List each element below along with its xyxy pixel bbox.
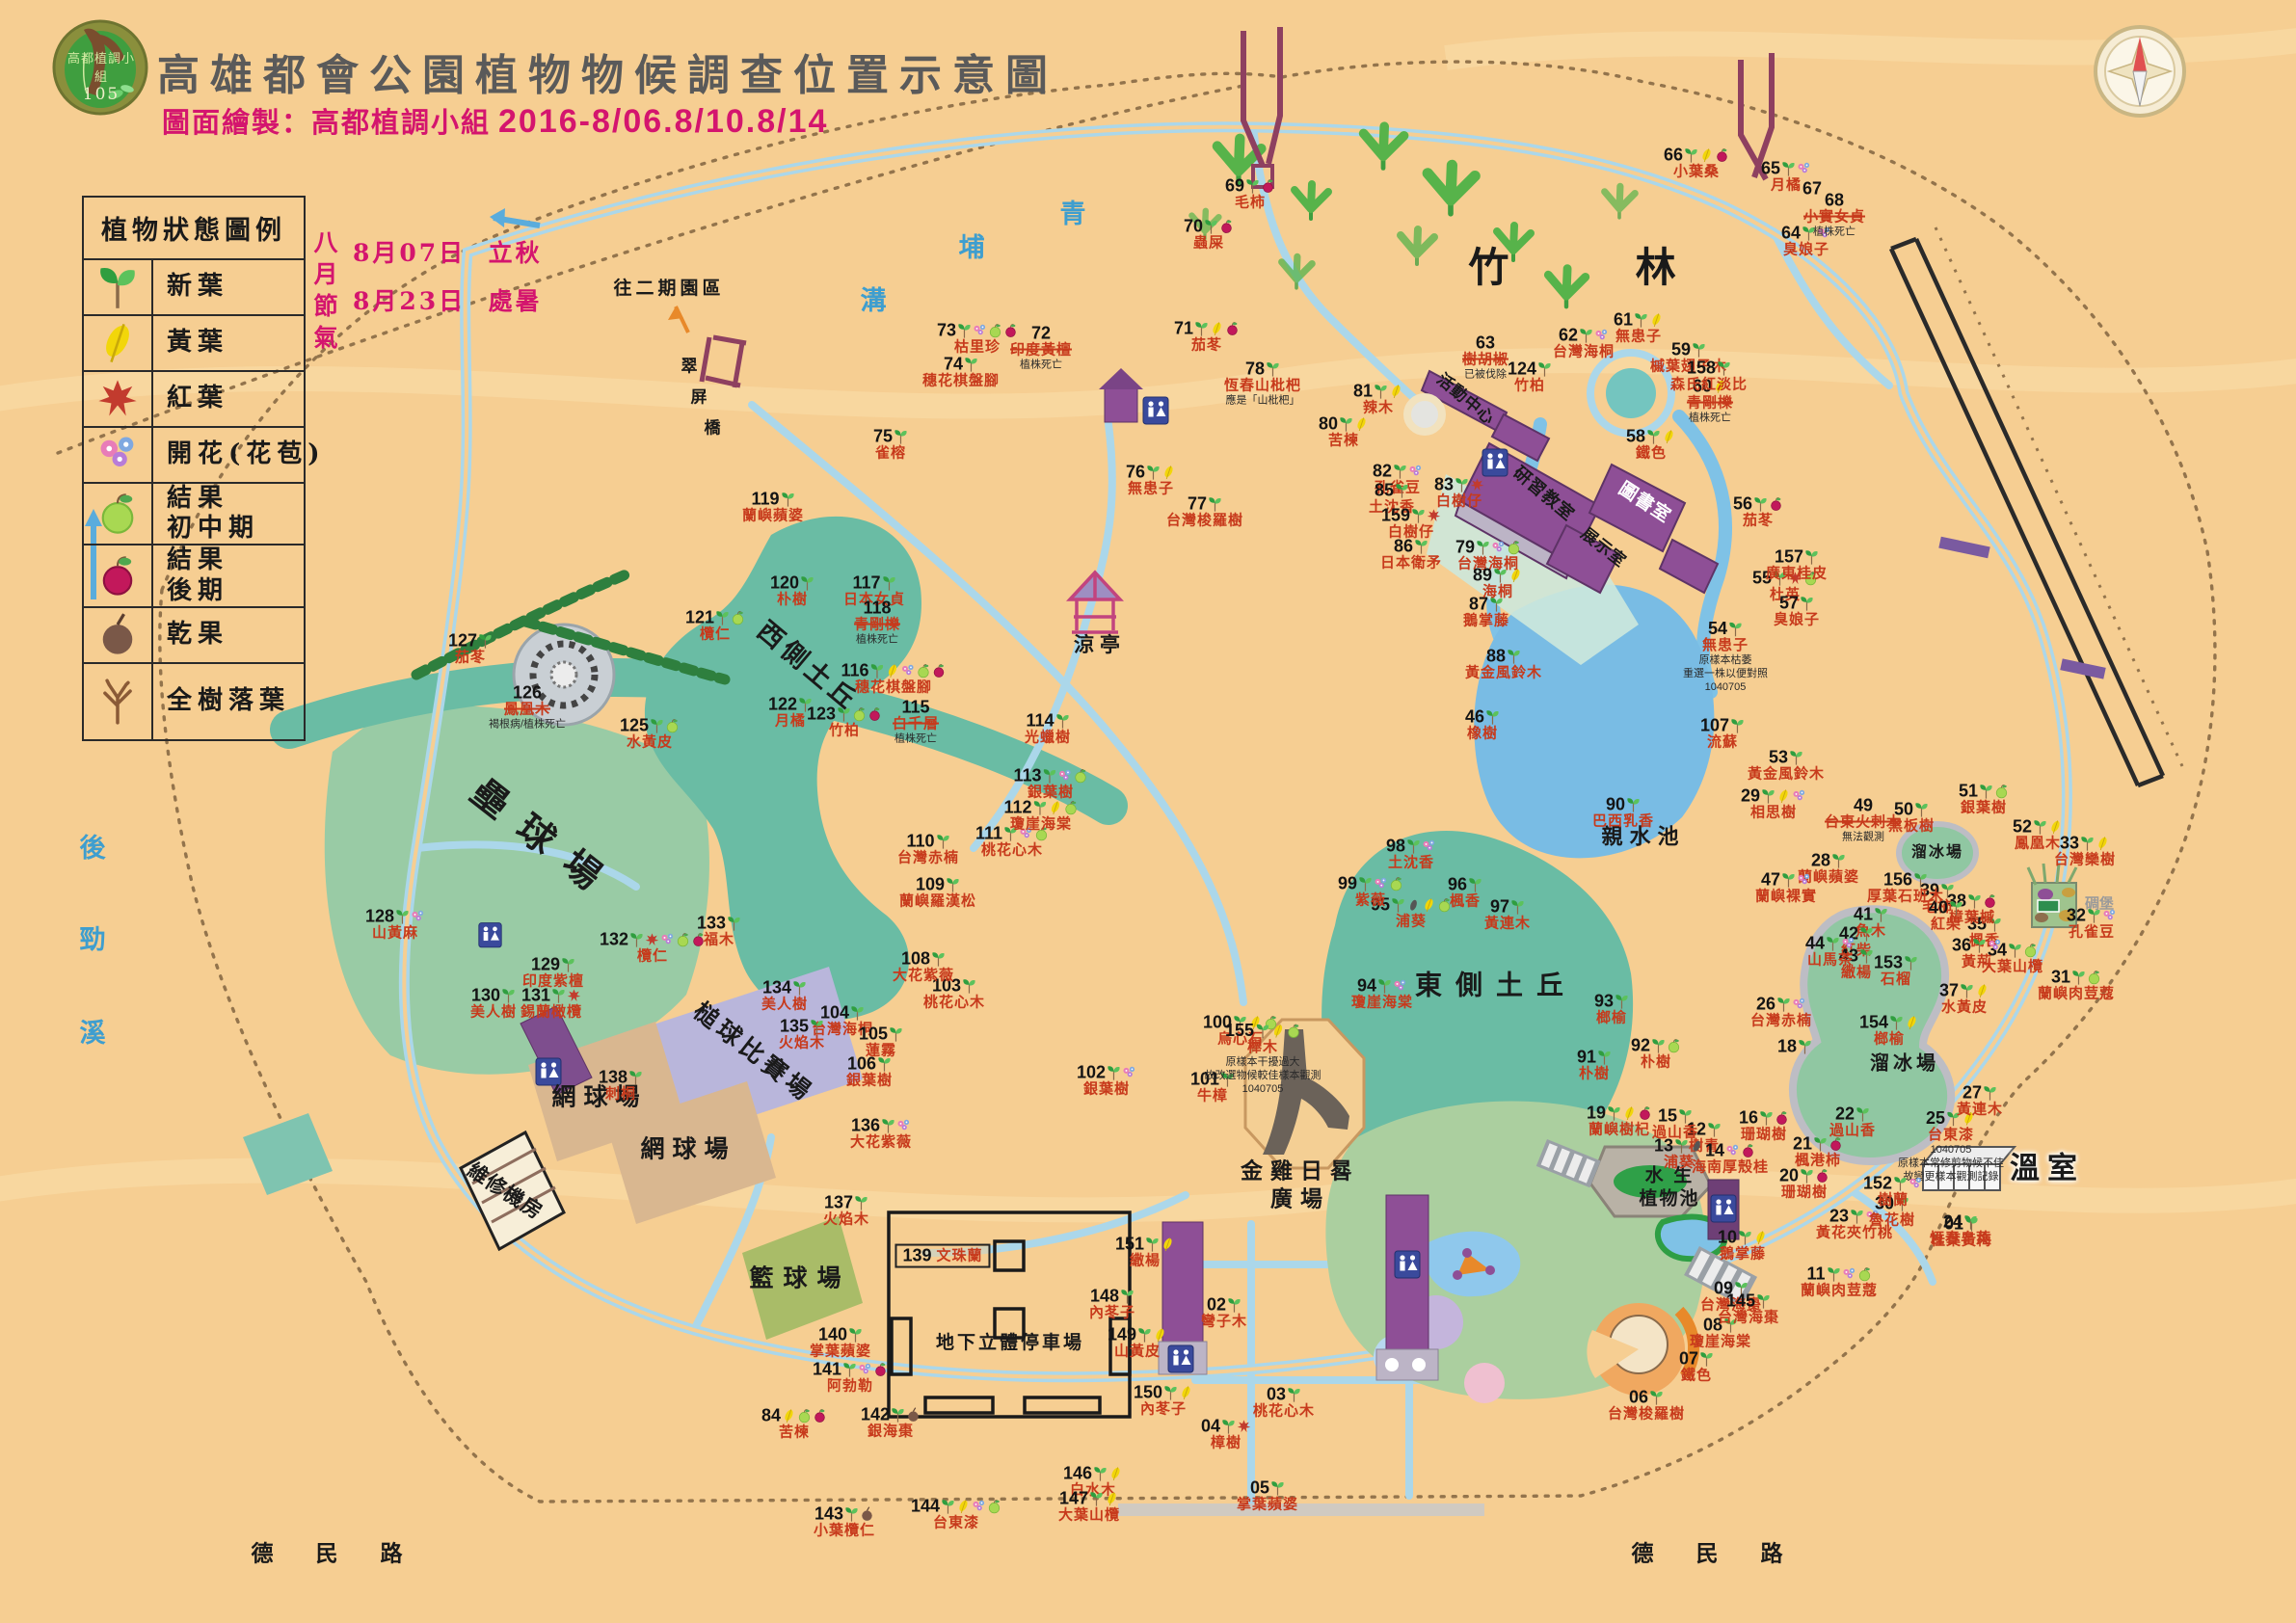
plant-name: 竹柏 (1514, 379, 1545, 394)
toilet-sign-activity-center (1482, 449, 1508, 476)
y-status-icon (1649, 312, 1664, 329)
activity-center-forecourt (1407, 397, 1442, 432)
plant-marker-119: 119蘭嶼蘋婆 (742, 491, 804, 524)
g-status-icon (1972, 938, 1987, 954)
plant-name: 彎子木 (1201, 1315, 1247, 1330)
plant-name: 台灣海桐 (1553, 345, 1615, 360)
y-status-icon (886, 663, 900, 679)
g-status-icon (781, 492, 795, 508)
plant-name: 山馬茶 (1807, 953, 1854, 969)
legend-label: 黃葉 (153, 328, 304, 358)
g-status-icon (1756, 1293, 1771, 1310)
g-status-icon (1455, 477, 1469, 493)
g-status-icon (964, 357, 978, 373)
g-status-icon (1055, 713, 1070, 730)
f-status-icon (858, 1362, 872, 1378)
plant-marker-69: 69毛柿 (1225, 177, 1275, 211)
plant-name: 銀葉樹 (1083, 1082, 1130, 1098)
plant-name: 小葉桑 (1673, 165, 1720, 180)
f-status-icon (1988, 938, 2002, 954)
marker-number: 18 (1777, 1038, 1797, 1056)
area-label: 竹 林 (1468, 243, 1708, 294)
plant-marker-72: 72印度黃檀植株死亡 (1010, 325, 1072, 372)
g-status-icon (894, 429, 908, 445)
plant-name: 台東漆 (1928, 1128, 1974, 1143)
g-status-icon (931, 951, 946, 968)
g-status-icon (629, 932, 644, 948)
g-status-icon (1979, 784, 1993, 800)
y-status-icon (1179, 1385, 1193, 1401)
west-blue-arrow-icon (490, 208, 540, 227)
plant-marker-31: 31蘭嶼肉荳蔻 (2038, 969, 2115, 1002)
y-status-icon (1270, 1023, 1285, 1039)
rf-status-icon (932, 663, 947, 679)
g-status-icon (1983, 1085, 1997, 1102)
plant-marker-52: 52鳳凰木 (2013, 818, 2063, 852)
f-status-icon (973, 323, 987, 339)
g-status-icon (941, 1499, 955, 1515)
plant-marker-142: 142銀海棗 (861, 1406, 921, 1440)
g-status-icon (1468, 877, 1482, 893)
plant-name: 石榴 (1881, 972, 1911, 988)
plant-marker-10: 10鵝掌藤 (1718, 1229, 1768, 1263)
plant-name: 水黃皮 (1941, 1000, 1988, 1016)
plant-marker-50: 50黑板樹 (1888, 801, 1935, 835)
plant-name: 阿勃勒 (827, 1379, 873, 1395)
g-status-icon (1859, 926, 1874, 943)
plant-name: 無患子 (1702, 638, 1749, 653)
y-legend-icon-cell (84, 316, 153, 370)
plant-name: 福木 (704, 933, 734, 948)
plant-marker-120: 120朴樹 (770, 574, 814, 608)
area-label: 地下立體停車場 (936, 1332, 1084, 1355)
legend-row: 紅葉 (84, 372, 304, 428)
f-status-icon (411, 909, 425, 925)
plant-name: 黃金風鈴木 (1465, 666, 1542, 681)
f-legend-icon-cell (84, 428, 153, 482)
plant-marker-02: 02彎子木 (1201, 1296, 1247, 1330)
g-status-icon (1827, 1266, 1841, 1283)
g-status-icon (1759, 1110, 1774, 1127)
page-title: 高雄都會公園植物物候調查位置示意圖 (157, 40, 1058, 102)
plant-marker-81: 81辣木 (1353, 383, 1403, 416)
plant-name: 鳳凰木 (504, 702, 550, 717)
area-label: 橋 (705, 418, 721, 439)
marker-note: 無法觀測 (1842, 830, 1884, 843)
g-status-icon (628, 1070, 643, 1086)
legend-label: 開花(花苞) (153, 439, 326, 469)
plant-name: 桃花心木 (981, 843, 1043, 859)
y-status-icon (96, 320, 139, 366)
g-status-icon (551, 988, 566, 1004)
f-status-icon (1393, 978, 1407, 995)
g-status-icon (1163, 1385, 1178, 1401)
plant-name: 台灣海棗 (1718, 1311, 1779, 1326)
y-status-icon (1389, 384, 1403, 400)
g-status-icon (715, 610, 730, 626)
plant-name: 孔雀豆 (2069, 925, 2115, 941)
plant-name: 繖楊 (1130, 1254, 1161, 1269)
plant-status-legend: 植物狀態圖例 新葉黃葉紅葉開花(花苞)結果 初中期結果 後期乾果全樹落葉 (82, 196, 306, 741)
plant-marker-110: 110台灣赤楠 (897, 833, 959, 866)
g-status-icon (2033, 819, 2047, 836)
marker-note: 植株死亡 (1813, 225, 1855, 238)
g-status-icon (810, 1019, 824, 1035)
plant-marker-130: 130美人樹 (470, 987, 517, 1021)
area-label: 勁 (80, 924, 106, 957)
plant-name: 小實女貞 (1803, 209, 1865, 225)
legend-header: 植物狀態圖例 (84, 198, 304, 260)
gf-status-icon (1286, 1023, 1300, 1039)
legend-label: 全樹落葉 (153, 686, 304, 716)
plant-name: 恆春山枇杷 (1224, 378, 1301, 393)
plant-marker-116: 116穗花棋盤腳 (841, 662, 946, 696)
plant-marker-58: 58鐵色 (1626, 428, 1676, 462)
plant-marker-141: 141阿勃勒 (813, 1361, 888, 1395)
area-label: 東側土丘 (1415, 969, 1577, 1002)
plant-marker-136: 136大花紫薇 (850, 1117, 912, 1151)
plant-name: 恆春皂莢 (1930, 1232, 1991, 1247)
g-status-icon (1761, 788, 1775, 805)
g-status-icon (854, 1195, 868, 1211)
g-status-icon (1255, 1023, 1269, 1039)
plant-marker-153: 153石榴 (1874, 954, 1918, 988)
g-status-icon (1476, 540, 1490, 556)
area-label: 翠 (681, 357, 698, 377)
g-status-icon (889, 1026, 903, 1043)
g-status-icon (1287, 1387, 1301, 1403)
plant-marker-90: 90巴西乳香 (1592, 796, 1654, 830)
f-status-icon (1374, 876, 1388, 892)
plant-marker-86: 86日本衛矛 (1380, 538, 1442, 572)
area-label: 溝 (861, 285, 887, 318)
y-status-icon (1161, 1237, 1175, 1253)
plant-name: 光蠟樹 (1025, 731, 1071, 746)
g-status-icon (1850, 1209, 1864, 1225)
plant-marker-91: 91朴樹 (1577, 1049, 1612, 1082)
marker-number: 132 (600, 931, 628, 949)
rf-status-icon (873, 1362, 888, 1378)
g-status-icon (842, 1362, 857, 1378)
g-status-icon (1967, 893, 1982, 910)
plant-marker-24: 24恆春皂莢 (1930, 1213, 1991, 1247)
y-status-icon (1153, 1327, 1167, 1344)
legend-row: 結果 後期 (84, 545, 304, 607)
plant-marker-75: 75雀榕 (873, 428, 908, 462)
rf-status-icon (1815, 1168, 1829, 1184)
gf-status-icon (852, 706, 867, 723)
f-status-icon (1422, 838, 1436, 855)
area-label: 溜冰場 (1911, 842, 1963, 862)
plant-marker-83: 83白樹仔 (1434, 476, 1484, 510)
plant-marker-109: 109蘭嶼羅漢松 (899, 876, 976, 910)
plant-name: 流蘇 (1707, 735, 1738, 751)
plant-name: 蘭嶼蘋婆 (742, 509, 804, 524)
plant-name: 樟樹 (1211, 1436, 1241, 1451)
plant-name: 鳳凰木 (2015, 837, 2061, 852)
g-status-icon (1137, 1327, 1152, 1344)
g-status-icon (1146, 465, 1161, 481)
f-status-icon (1725, 1143, 1740, 1159)
g-status-icon (1597, 1050, 1612, 1066)
plant-name: 朴樹 (777, 593, 808, 608)
plant-name: 蘭嶼羅漢松 (899, 894, 976, 910)
plant-name: 楓香 (1450, 894, 1481, 910)
rf-status-icon (1715, 147, 1729, 164)
f-status-icon (1841, 936, 1855, 952)
plant-name: 巴西乳香 (1592, 814, 1654, 830)
plant-name: 月橘 (1771, 178, 1802, 194)
plant-marker-27: 27黃連木 (1957, 1084, 2003, 1118)
g-status-icon (891, 1407, 905, 1423)
area-label: 涼亭 (1074, 632, 1126, 657)
g-status-icon (946, 877, 960, 893)
g-status-icon (1406, 838, 1421, 855)
y-status-icon (1622, 1105, 1637, 1122)
area-label: 溜冰場 (1870, 1051, 1939, 1076)
g-status-icon (1493, 568, 1508, 584)
g-status-icon (1874, 907, 1888, 923)
y-status-icon (1354, 416, 1369, 433)
plant-marker-125: 125水黃皮 (620, 717, 680, 751)
g-status-icon (877, 1056, 892, 1073)
g-status-icon (1507, 649, 1521, 665)
tree-status-icon (96, 678, 139, 725)
plant-marker-05: 05掌葉蘋婆 (1237, 1479, 1298, 1513)
plant-marker-129: 129印度紫檀 (522, 956, 584, 990)
plant-name: 銀海棗 (868, 1424, 914, 1440)
d-status-icon (860, 1506, 874, 1523)
plant-name: 刺桐 (605, 1087, 636, 1103)
f-status-icon (1594, 328, 1609, 344)
plant-marker-92: 92朴樹 (1631, 1037, 1681, 1071)
restroom-tower-east (1376, 1195, 1438, 1380)
g-status-icon (1089, 1491, 1104, 1507)
f-status-icon (972, 1499, 986, 1515)
g-status-icon (1707, 1122, 1722, 1138)
gf-status-icon (1389, 876, 1403, 892)
plant-name: 朴樹 (1579, 1067, 1610, 1082)
r-status-icon (645, 932, 659, 948)
area-label: 屏 (691, 387, 707, 408)
g-status-icon (1266, 360, 1280, 377)
legend-label: 紅葉 (153, 384, 304, 413)
plant-marker-107: 107流蘇 (1700, 717, 1745, 751)
g-status-icon (478, 633, 493, 650)
f-status-icon (1792, 788, 1806, 805)
gf-legend-icon-cell (84, 484, 153, 544)
plant-name: 珊瑚樹 (1741, 1128, 1787, 1143)
plant-name: 銀葉樹 (1961, 801, 2007, 816)
g-status-icon (881, 1118, 895, 1134)
g-status-icon (1813, 1136, 1828, 1153)
plant-name: 美人樹 (761, 998, 808, 1013)
plant-name: 浦葵 (1664, 1156, 1695, 1171)
g-status-icon (1800, 1168, 1814, 1184)
y-status-icon (1161, 465, 1176, 481)
plant-name: 桃花心木 (1253, 1404, 1315, 1420)
plant-name: 青剛櫟 (854, 617, 900, 632)
plant-marker-152: 152樹蘭 (1863, 1175, 1923, 1209)
plant-name: 土沈香 (1388, 856, 1434, 871)
r-status-icon (1470, 477, 1484, 493)
g-status-icon (1798, 1038, 1812, 1054)
f-status-icon (1797, 161, 1811, 177)
plant-name: 廣東桂皮 (1766, 567, 1828, 582)
plant-name: 鐵色 (1636, 446, 1667, 462)
marker-number: 139 (902, 1247, 931, 1265)
plant-marker-14: 14海南厚殼桂 (1692, 1142, 1769, 1176)
rf-status-icon (1741, 1143, 1755, 1159)
compass-icon (2096, 27, 2184, 116)
g-status-icon (1904, 955, 1918, 971)
plant-name: 欖仁 (637, 949, 668, 965)
plant-name: 過山香 (1829, 1124, 1876, 1139)
g-status-icon (1649, 1390, 1664, 1406)
plant-name: 樹蘭 (1878, 1193, 1909, 1209)
plant-marker-70: 70蟲屎 (1184, 218, 1234, 252)
plant-name: 朴樹 (1641, 1055, 1671, 1071)
g-status-icon (395, 909, 410, 925)
f-status-icon (1408, 464, 1423, 480)
legend-label: 乾果 (153, 620, 304, 650)
park-map-canvas: 高雄都會公園植物物候調查位置示意圖 圖面繪製：高都植調小組2016-8/06.8… (0, 0, 2296, 1623)
plant-marker-155: 155櫸木原樣本干擾過大 故改選物候較佳樣本觀測 1040705 (1205, 1022, 1322, 1097)
g-status-icon (1607, 1105, 1621, 1122)
g-status-icon (1107, 1065, 1121, 1081)
plant-marker-16: 16珊瑚樹 (1739, 1109, 1789, 1143)
plant-name: 台灣赤楠 (897, 851, 959, 866)
f-status-icon (96, 432, 139, 478)
y-status-icon (782, 1408, 796, 1424)
plant-name: 黃連木 (1484, 917, 1531, 932)
gf-status-icon (731, 610, 745, 626)
f-status-icon (1491, 540, 1506, 556)
area-label: 德 民 路 (1631, 1541, 1800, 1569)
plant-name: 榔榆 (1596, 1011, 1627, 1026)
area-label: 後 (80, 833, 106, 865)
gf-status-icon (1074, 768, 1088, 785)
plant-name: 雀榕 (875, 446, 906, 462)
g-status-icon (1377, 978, 1392, 995)
rf-status-icon (1003, 323, 1018, 339)
plant-name: 茄苳 (1191, 338, 1222, 354)
rf-status-icon (1261, 178, 1275, 195)
plant-name: 水黃皮 (627, 735, 673, 751)
plant-marker-29: 29相思樹 (1741, 787, 1806, 821)
august-solar-terms: 八月節氣 8月07日 立秋 8月23日 處暑 (307, 229, 543, 357)
plant-name: 海桐 (1482, 585, 1513, 600)
legend-label: 新葉 (153, 272, 304, 302)
gf-status-icon (1667, 1038, 1681, 1054)
plant-name: 蟲屎 (1193, 236, 1224, 252)
y-status-icon (1508, 568, 1523, 584)
plant-name: 鐵色 (1681, 1369, 1712, 1384)
g-status-icon (1960, 983, 1974, 999)
plant-marker-63: 63樹胡椒已被伐除 (1462, 334, 1508, 382)
plant-marker-66: 66小葉桑 (1664, 146, 1729, 180)
y-status-icon (1753, 1230, 1768, 1246)
y-status-icon (956, 1499, 971, 1515)
plant-name: 錫蘭橄欖 (521, 1005, 582, 1021)
legend-label: 結果 初中期 (153, 484, 304, 544)
plant-name: 掌葉蘋婆 (1237, 1498, 1298, 1513)
plant-name: 台灣梭羅樹 (1608, 1407, 1685, 1423)
area-label: 金雞日晷 廣場 (1241, 1157, 1360, 1213)
g-status-icon (1145, 1237, 1160, 1253)
marker-note: 已被伐除 (1464, 367, 1507, 381)
plant-marker-54: 54無患子原樣本枯萎 重選一株以便對照 1040705 (1683, 620, 1768, 695)
y-status-icon (1210, 321, 1224, 337)
plant-name: 臭娘子 (1774, 613, 1820, 628)
plant-marker-135: 135火焰木 (779, 1018, 825, 1051)
k-status-icon (1406, 897, 1421, 914)
logo-group-text: 高都植調小組 105 (67, 48, 135, 104)
y-status-icon (1699, 147, 1714, 164)
subtitle-label: 圖面繪製：高都植調小組 (162, 106, 491, 139)
g-status-icon (1208, 496, 1222, 513)
marker-note: 應是「山枇杷」 (1225, 393, 1299, 407)
plant-marker-145: 145台灣海棗 (1718, 1292, 1779, 1326)
plant-marker-26: 26台灣赤楠 (1750, 996, 1812, 1029)
gf-status-icon (1064, 800, 1079, 816)
logo-year: 105 (67, 85, 135, 104)
g-status-icon (1221, 1419, 1236, 1435)
g-status-icon (2087, 908, 2101, 924)
plant-marker-133: 133福木 (697, 915, 741, 948)
marker-note: 褐根病/植株死亡 (489, 717, 566, 731)
plant-marker-137: 137火焰木 (823, 1194, 869, 1228)
plant-marker-78: 78恆春山枇杷應是「山枇杷」 (1224, 360, 1301, 408)
plant-marker-36: 36黃荊 (1952, 937, 2002, 971)
g-status-icon (1651, 1038, 1666, 1054)
legend-row: 開花(花苞) (84, 428, 304, 484)
plant-marker-156: 156厚葉石班木 (1867, 871, 1944, 905)
g-status-icon (1579, 328, 1593, 344)
plant-name: 欖仁 (700, 627, 731, 643)
g-status-icon (2008, 943, 2022, 959)
plant-name: 小葉欖仁 (814, 1524, 875, 1539)
rf-status-icon (1638, 1105, 1652, 1122)
plant-marker-157: 157廣東桂皮 (1766, 548, 1828, 582)
plant-marker-115: 115白千層植株死亡 (893, 699, 939, 746)
plant-name: 蘭嶼肉荳蔻 (2038, 987, 2115, 1002)
y-status-icon (1105, 1491, 1119, 1507)
tree-legend-icon-cell (84, 664, 153, 739)
plant-name: 榔榆 (1874, 1032, 1905, 1048)
legend-rows: 新葉黃葉紅葉開花(花苞)結果 初中期結果 後期乾果全樹落葉 (84, 260, 304, 739)
g-status-icon (1270, 1480, 1285, 1497)
gf-status-icon (797, 1408, 812, 1424)
g-status-icon (1634, 312, 1648, 329)
plant-marker-98: 98土沈香 (1386, 838, 1436, 871)
plant-marker-84: 84苦楝 (761, 1407, 827, 1441)
plant-marker-25: 25台東漆1040705 原樣本常修剪物候不佳 故變更樣本觀測記錄 (1898, 1109, 2004, 1184)
cuiping-bridge-icon (702, 337, 746, 387)
legend-row: 黃葉 (84, 316, 304, 372)
plant-marker-68: 68小實女貞植株死亡 (1803, 192, 1865, 239)
plant-marker-151: 151繖楊 (1115, 1236, 1175, 1269)
g-status-icon (650, 718, 664, 734)
area-label: 籃球場 (749, 1263, 850, 1292)
plant-marker-62: 62台灣海桐 (1553, 327, 1615, 360)
plant-name: 火焰木 (823, 1212, 869, 1228)
g-status-icon (1339, 416, 1353, 433)
g-legend-icon-cell (84, 260, 153, 314)
d-legend-icon-cell (84, 608, 153, 662)
plant-marker-88: 88黃金風鈴木 (1465, 648, 1542, 681)
plant-name: 樹胡椒 (1462, 352, 1508, 367)
